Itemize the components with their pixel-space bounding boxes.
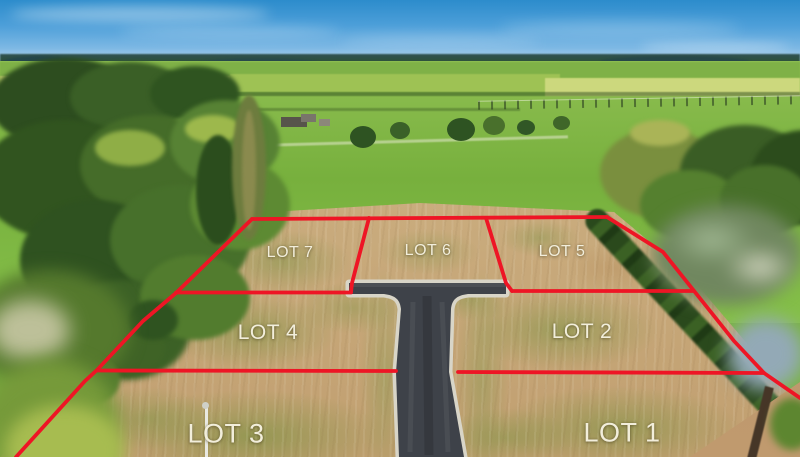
tree — [517, 120, 535, 135]
cloud — [640, 42, 790, 52]
tree-highlight — [630, 120, 690, 146]
tree — [553, 116, 570, 130]
cloud — [500, 22, 740, 35]
boundary-bush — [128, 300, 178, 340]
far-field-green — [230, 74, 560, 92]
cloud — [10, 6, 270, 22]
lot-2-label: LOT 2 — [552, 320, 612, 344]
tree — [390, 122, 410, 139]
lot-5-label: LOT 5 — [539, 243, 586, 261]
lot-3-label: LOT 3 — [187, 419, 264, 450]
pole-top — [202, 402, 209, 409]
lot-1-label: LOT 1 — [583, 418, 660, 449]
poplar-trunk — [242, 110, 256, 230]
blurred-neighbour-house — [652, 205, 800, 305]
cloud — [340, 36, 540, 47]
tree-highlight — [95, 130, 165, 166]
aerial-photo: LOT 7 LOT 6 LOT 5 LOT 4 LOT 2 LOT 3 LOT … — [0, 0, 800, 457]
blurred-neighbour-area — [728, 318, 800, 390]
farm-building — [301, 114, 316, 122]
tree — [483, 116, 505, 135]
lot-6-label: LOT 6 — [405, 242, 452, 260]
lot-7-label: LOT 7 — [267, 244, 314, 262]
farm-building — [319, 119, 330, 126]
lot-4-label: LOT 4 — [238, 321, 298, 345]
tree — [447, 118, 475, 141]
cloud — [120, 26, 340, 37]
tree — [350, 126, 376, 148]
